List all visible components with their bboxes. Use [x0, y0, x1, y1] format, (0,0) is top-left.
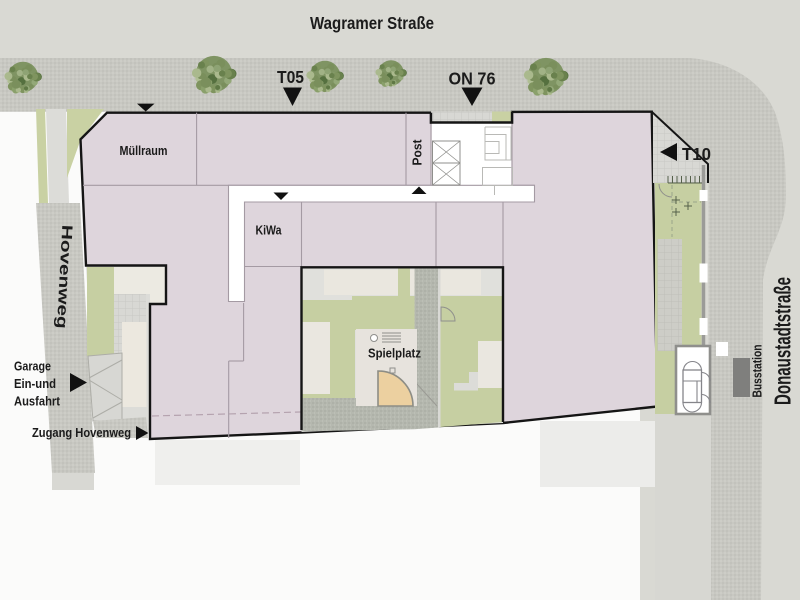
svg-text:Wagramer Straße: Wagramer Straße	[310, 13, 434, 33]
svg-text:Donaustadtstraße: Donaustadtstraße	[770, 277, 796, 405]
svg-text:Spielplatz: Spielplatz	[368, 346, 421, 361]
svg-text:Garage: Garage	[14, 359, 51, 374]
svg-text:Zugang Hovenweg: Zugang Hovenweg	[32, 425, 131, 440]
svg-text:Post: Post	[411, 139, 425, 166]
svg-text:Ein-und: Ein-und	[14, 376, 56, 391]
svg-text:T05: T05	[277, 67, 304, 87]
svg-text:T10: T10	[682, 144, 711, 164]
svg-text:Müllraum: Müllraum	[120, 144, 168, 158]
svg-text:Ausfahrt: Ausfahrt	[14, 394, 61, 409]
svg-text:ON 76: ON 76	[449, 69, 496, 89]
svg-text:Busstation: Busstation	[751, 345, 765, 398]
svg-text:KiWa: KiWa	[256, 223, 283, 238]
